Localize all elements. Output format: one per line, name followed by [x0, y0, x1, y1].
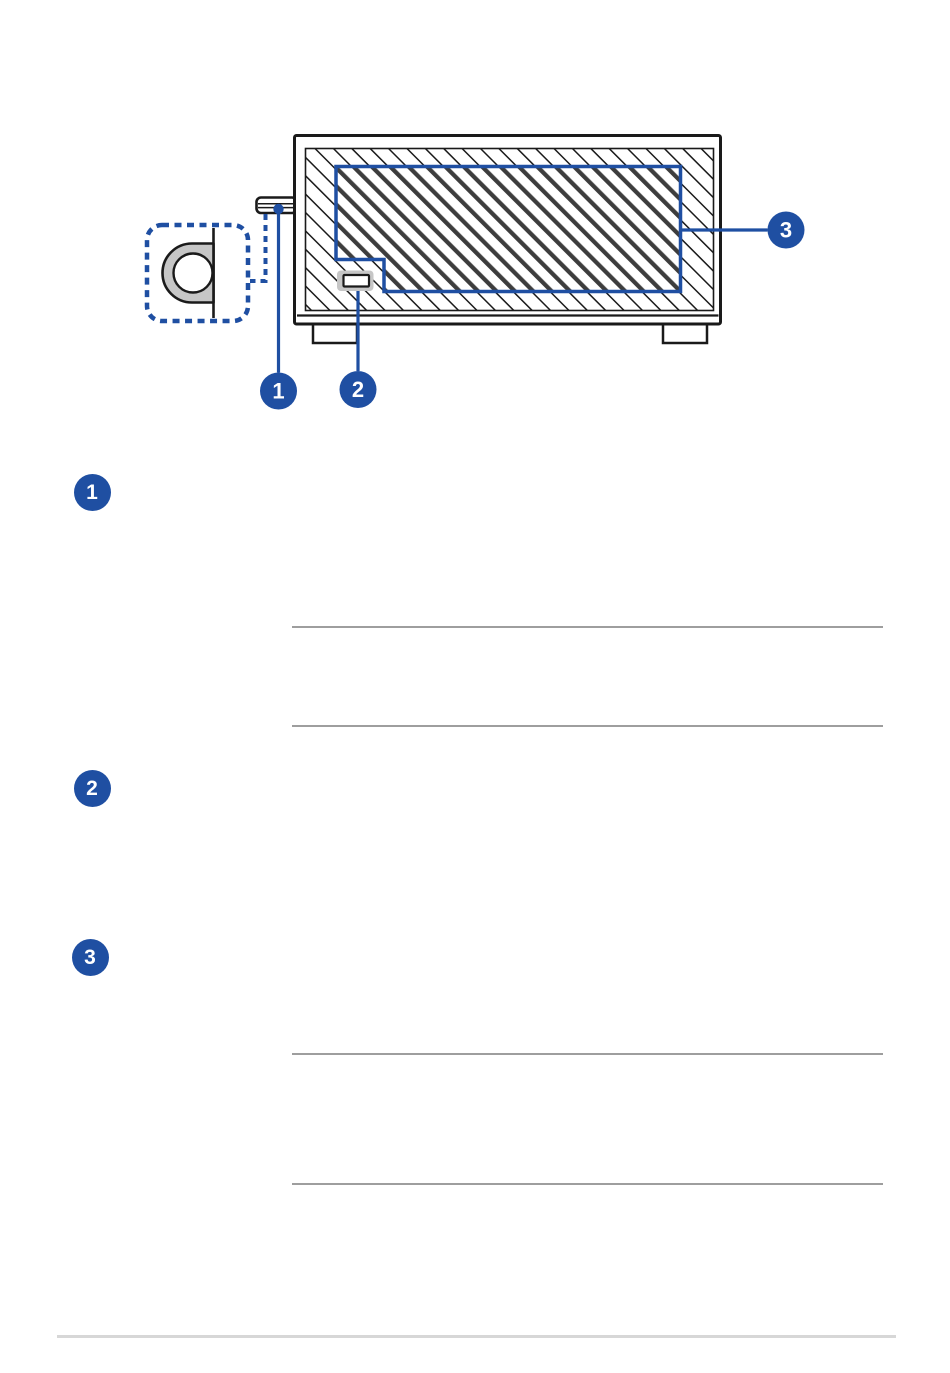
- section-3-note-rule-bottom: [292, 1183, 883, 1186]
- callout-3-badge: 3: [768, 212, 805, 249]
- section-1-note-rule-top: [292, 626, 883, 629]
- device-foot-right: [663, 323, 707, 343]
- lock-slot: [337, 271, 374, 292]
- detail-inset-dashed-leader: [250, 214, 266, 281]
- section-1-note-rule-bottom: [292, 725, 883, 728]
- callout-3-label: 3: [780, 218, 792, 243]
- callout-1-label: 1: [272, 379, 284, 404]
- hook-detail: [163, 228, 214, 318]
- footer-rule: [57, 1335, 896, 1338]
- manual-page: 1 2 3 1 2 3: [0, 0, 950, 1373]
- section-3-note-rule-top: [292, 1053, 883, 1056]
- device-diagram-svg: 1 2 3: [0, 0, 950, 460]
- device-diagram: 1 2 3: [0, 0, 950, 460]
- callout-1-badge: 1: [260, 373, 297, 410]
- device-foot-left: [313, 323, 357, 343]
- section-3-marker: 3: [72, 939, 109, 976]
- callout-2-label: 2: [352, 377, 364, 402]
- section-1-marker: 1: [74, 474, 111, 511]
- section-2-marker: 2: [74, 770, 111, 807]
- air-vent-highlight-region: [336, 167, 681, 292]
- callout-2-badge: 2: [340, 371, 377, 408]
